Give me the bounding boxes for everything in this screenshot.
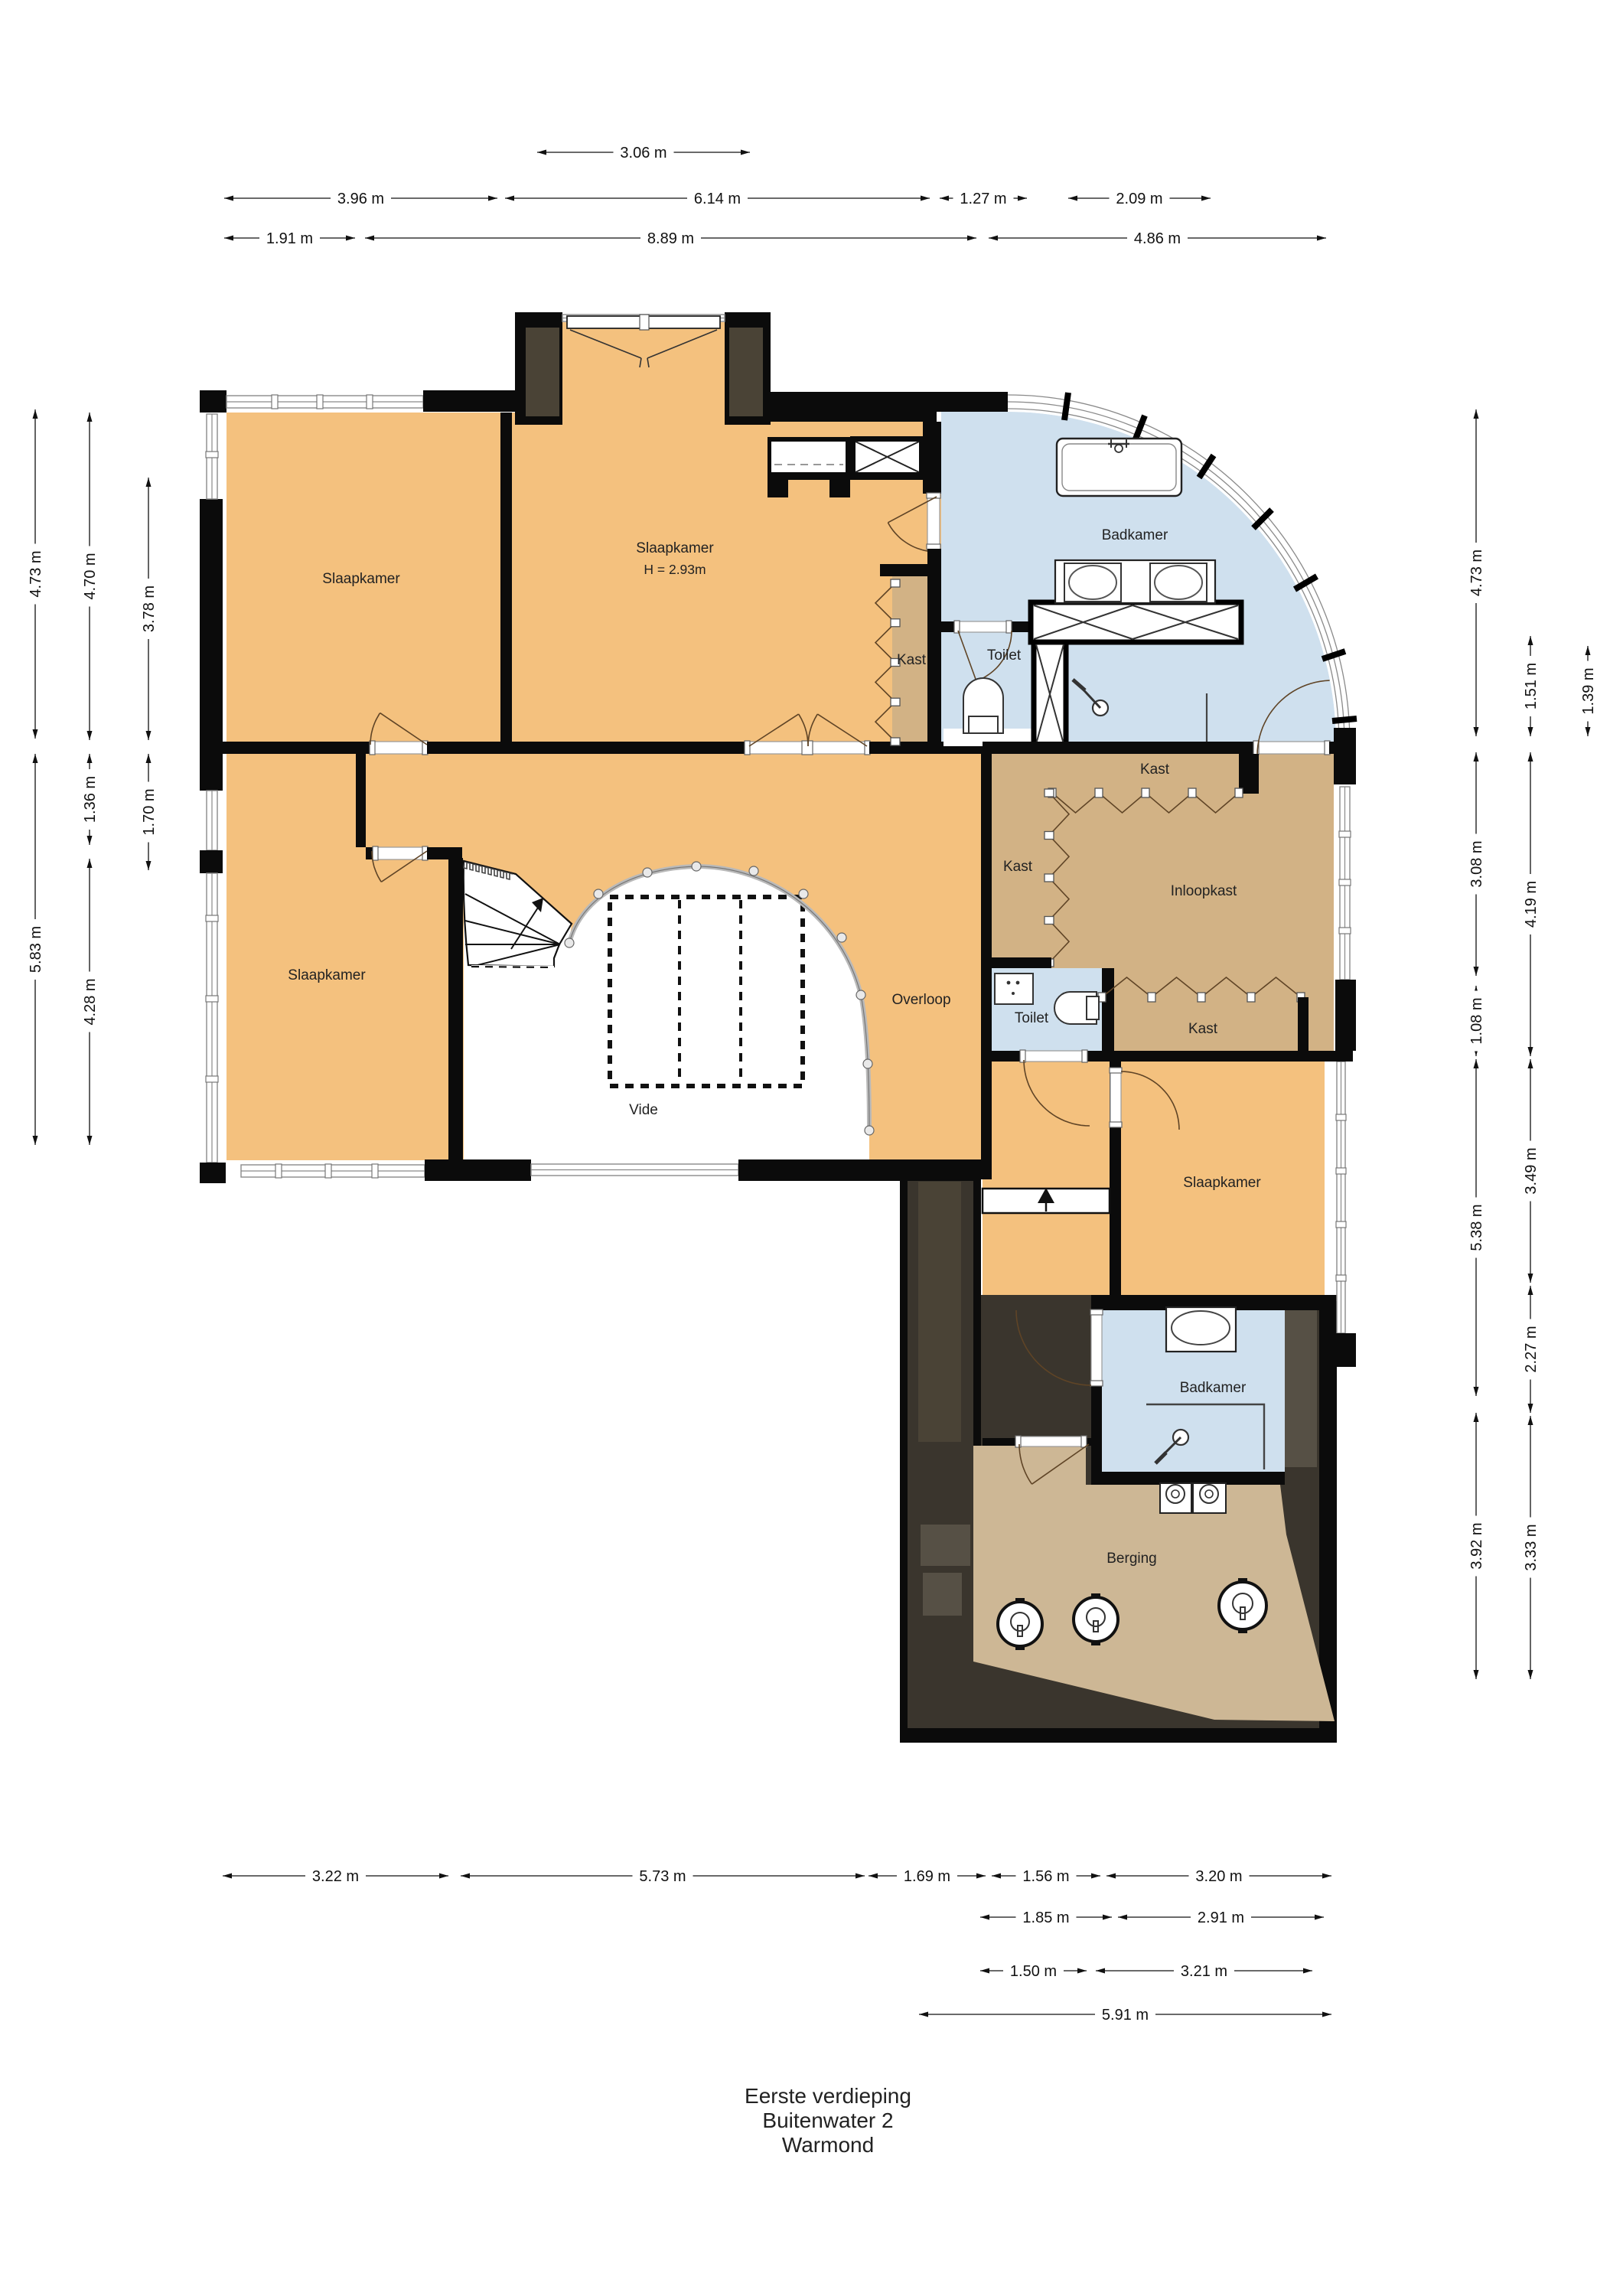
svg-text:Kast: Kast (897, 652, 927, 668)
svg-text:4.28 m: 4.28 m (82, 978, 99, 1025)
svg-text:H = 2.93m: H = 2.93m (644, 562, 706, 577)
svg-text:2.27 m: 2.27 m (1523, 1326, 1540, 1372)
svg-text:Badkamer: Badkamer (1180, 1380, 1247, 1396)
svg-text:1.39 m: 1.39 m (1580, 667, 1597, 714)
svg-text:1.91 m: 1.91 m (266, 230, 313, 247)
svg-text:Kast: Kast (1188, 1021, 1218, 1037)
svg-text:8.89 m: 8.89 m (647, 230, 694, 247)
svg-text:3.78 m: 3.78 m (141, 585, 158, 632)
svg-text:Slaapkamer: Slaapkamer (1183, 1175, 1261, 1191)
svg-text:3.96 m: 3.96 m (337, 191, 384, 207)
svg-text:Inloopkast: Inloopkast (1171, 883, 1237, 899)
svg-text:1.69 m: 1.69 m (904, 1868, 950, 1885)
svg-text:Toilet: Toilet (987, 647, 1022, 664)
svg-text:4.70 m: 4.70 m (82, 553, 99, 599)
svg-text:5.73 m: 5.73 m (639, 1868, 686, 1885)
svg-text:1.08 m: 1.08 m (1468, 997, 1485, 1044)
svg-text:5.83 m: 5.83 m (28, 926, 44, 973)
svg-text:3.21 m: 3.21 m (1181, 1963, 1227, 1980)
svg-text:Slaapkamer: Slaapkamer (288, 967, 366, 983)
svg-text:4.19 m: 4.19 m (1523, 881, 1540, 928)
svg-text:Overloop: Overloop (891, 992, 950, 1008)
svg-text:Eerste verdieping: Eerste verdieping (745, 2084, 911, 2108)
svg-text:3.92 m: 3.92 m (1468, 1522, 1485, 1569)
svg-text:3.22 m: 3.22 m (312, 1868, 359, 1885)
svg-text:2.09 m: 2.09 m (1116, 191, 1162, 207)
svg-text:1.27 m: 1.27 m (960, 191, 1006, 207)
svg-text:Warmond: Warmond (782, 2133, 874, 2157)
svg-text:5.91 m: 5.91 m (1102, 2007, 1149, 2024)
svg-text:6.14 m: 6.14 m (694, 191, 741, 207)
svg-text:2.91 m: 2.91 m (1198, 1910, 1244, 1926)
svg-text:Slaapkamer: Slaapkamer (322, 571, 400, 587)
svg-text:4.73 m: 4.73 m (1468, 550, 1485, 596)
svg-text:1.36 m: 1.36 m (82, 776, 99, 823)
svg-text:1.70 m: 1.70 m (141, 788, 158, 835)
svg-text:Kast: Kast (1140, 762, 1170, 778)
svg-text:4.86 m: 4.86 m (1134, 230, 1181, 247)
svg-text:Berging: Berging (1106, 1551, 1157, 1567)
svg-text:3.33 m: 3.33 m (1523, 1524, 1540, 1570)
svg-text:1.56 m: 1.56 m (1022, 1868, 1069, 1885)
svg-text:1.50 m: 1.50 m (1010, 1963, 1057, 1980)
svg-text:3.20 m: 3.20 m (1195, 1868, 1242, 1885)
svg-text:Slaapkamer: Slaapkamer (636, 540, 714, 556)
svg-text:5.38 m: 5.38 m (1468, 1204, 1485, 1251)
svg-text:3.06 m: 3.06 m (620, 145, 666, 161)
svg-text:1.51 m: 1.51 m (1523, 663, 1540, 709)
svg-text:1.85 m: 1.85 m (1022, 1910, 1069, 1926)
svg-text:Toilet: Toilet (1015, 1010, 1049, 1026)
svg-text:Buitenwater 2: Buitenwater 2 (762, 2108, 893, 2132)
svg-text:3.08 m: 3.08 m (1468, 840, 1485, 887)
svg-text:4.73 m: 4.73 m (28, 550, 44, 597)
svg-text:Vide: Vide (629, 1102, 658, 1118)
svg-text:Badkamer: Badkamer (1102, 527, 1168, 543)
svg-text:Kast: Kast (1003, 859, 1033, 875)
svg-text:3.49 m: 3.49 m (1523, 1147, 1540, 1194)
